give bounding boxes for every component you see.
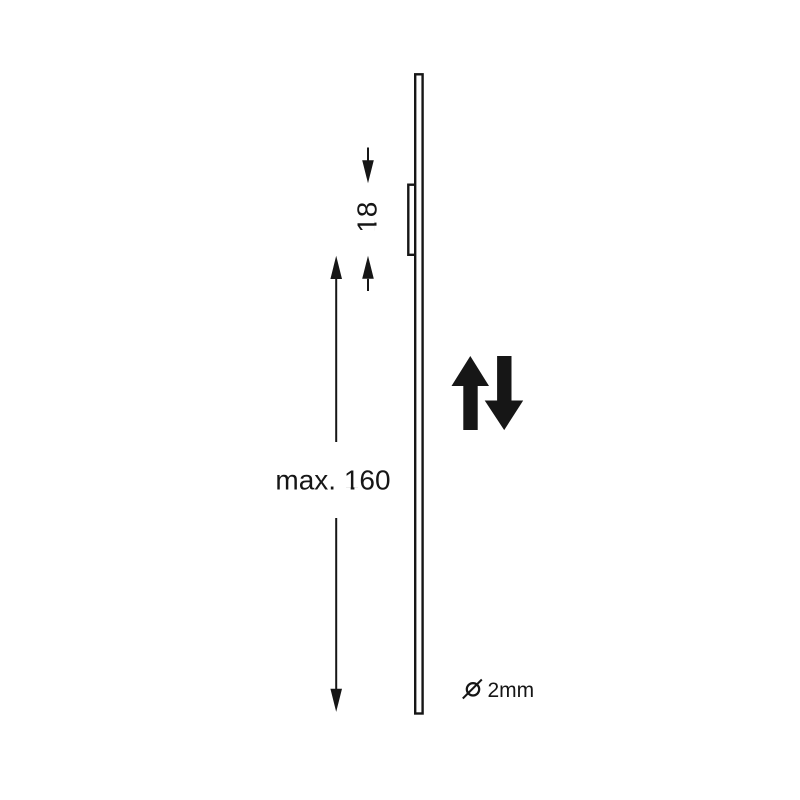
svg-text:max. 160: max. 160 (275, 465, 390, 496)
svg-text:18: 18 (352, 202, 383, 233)
svg-text:2mm: 2mm (488, 679, 535, 702)
